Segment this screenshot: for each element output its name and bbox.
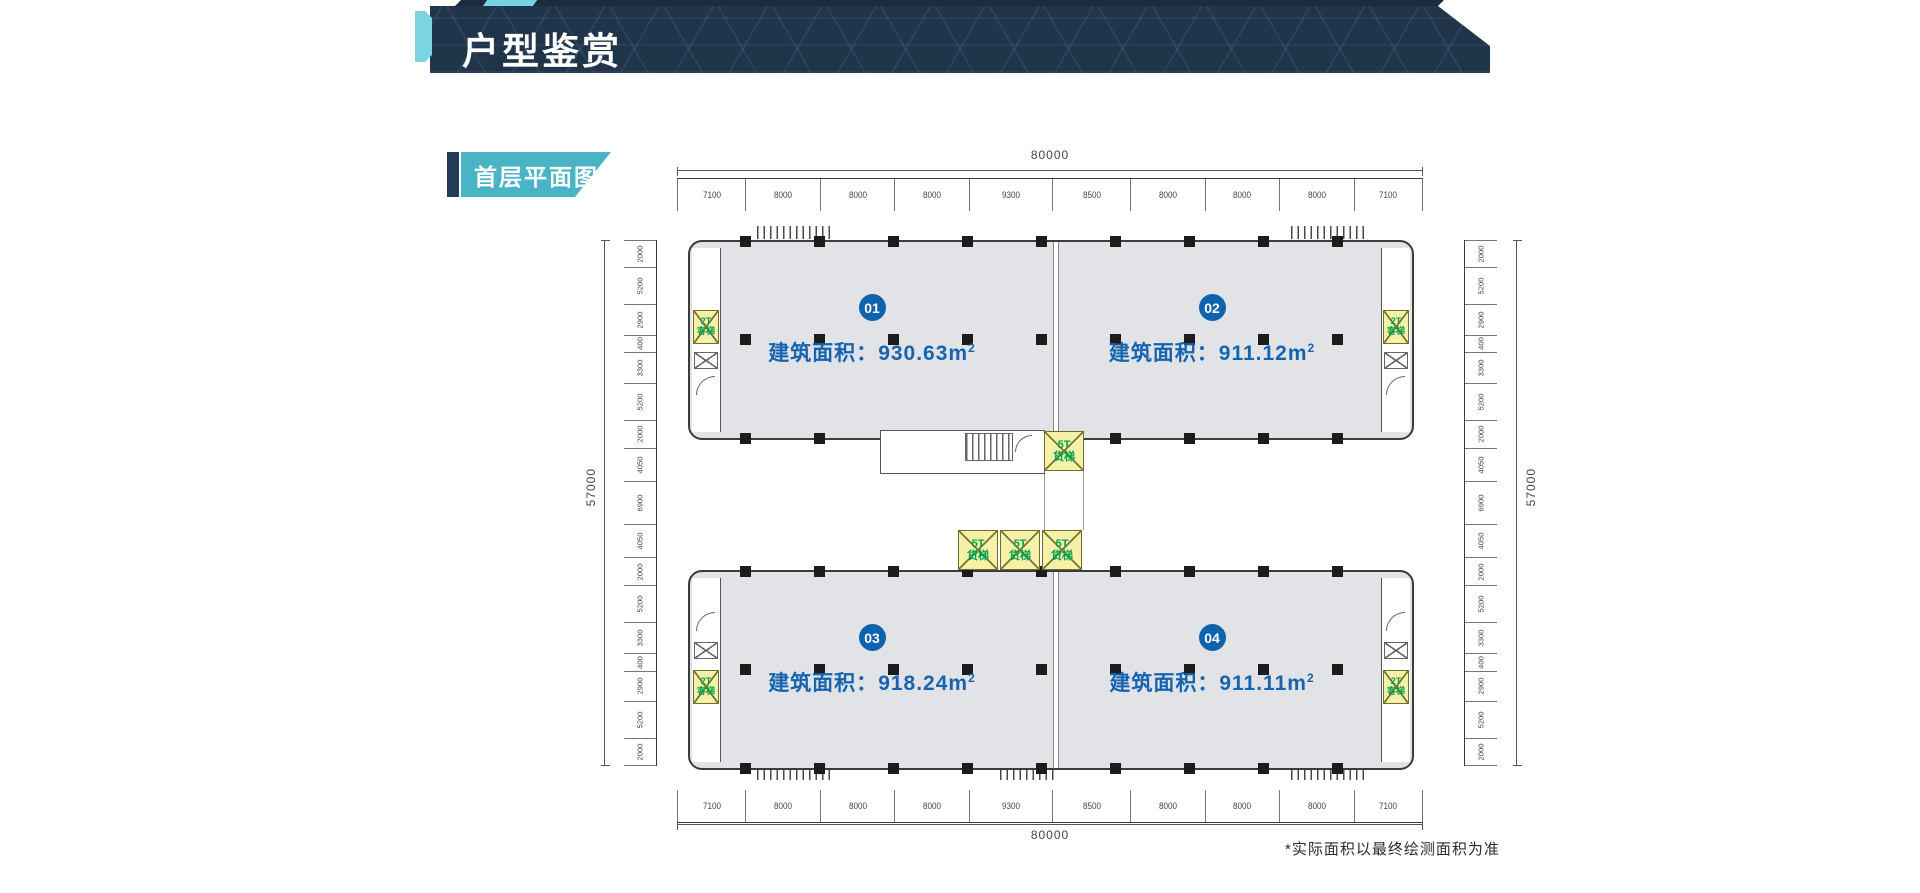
unit-02-badge: 02 [1199, 294, 1226, 321]
dim-segment: 5200 [624, 586, 656, 623]
page: 户型鉴赏 首层平面图 80000 71008000800080009300850… [0, 0, 1920, 893]
dim-segment: 8000 [1206, 790, 1281, 822]
elevator-label: 5T [1014, 538, 1027, 550]
dim-segment: 2000 [624, 558, 656, 585]
dim-line-bottom [677, 824, 1423, 825]
dim-segment: 2000 [1465, 739, 1497, 766]
dim-segment: 8000 [746, 790, 821, 822]
dim-segment: 8500 [1053, 179, 1131, 211]
dim-segment: 8000 [1206, 179, 1281, 211]
dim-segment: 5200 [624, 384, 656, 421]
dim-row-bottom: 7100800080008000930085008000800080007100 [677, 790, 1423, 823]
dim-segment: 400 [1465, 336, 1497, 353]
dim-segment: 8000 [1131, 179, 1206, 211]
dim-segment: 2900 [624, 305, 656, 335]
dim-segment: 8000 [1280, 790, 1355, 822]
dim-segment: 400 [624, 654, 656, 671]
dim-segment: 6900 [1465, 482, 1497, 525]
dim-segment: 2000 [1465, 240, 1497, 268]
dim-overall-height-left: 57000 [584, 468, 598, 506]
dim-segment: 2900 [1465, 672, 1497, 702]
dim-segment: 9300 [970, 179, 1053, 211]
unit-01-badge: 01 [859, 294, 886, 321]
core-corridor [1044, 470, 1084, 530]
dim-segment: 8000 [746, 179, 821, 211]
dim-segment: 400 [624, 336, 656, 353]
dim-segment: 8000 [895, 790, 970, 822]
dim-segment: 2000 [1465, 558, 1497, 585]
elevator-label: 5T [1056, 538, 1069, 550]
dim-segment: 7100 [677, 179, 746, 211]
dim-segment: 2000 [1465, 421, 1497, 448]
dim-col-right: 2000520029004003300520020004050690040502… [1464, 240, 1497, 766]
stairs-hatch [965, 433, 1013, 461]
unit-03-badge: 03 [859, 624, 886, 651]
unit-03-label: 03 建筑面积：918.24m2 [692, 624, 1052, 697]
footnote: *实际面积以最终绘测面积为准 [1285, 838, 1500, 859]
dim-segment: 2000 [624, 421, 656, 448]
dim-segment: 5200 [1465, 268, 1497, 305]
freight-elevator: 5T 货梯 [958, 530, 998, 570]
dim-segment: 3300 [1465, 353, 1497, 384]
dim-segment: 5200 [1465, 384, 1497, 421]
dim-segment: 2000 [624, 240, 656, 268]
dim-segment: 6900 [624, 482, 656, 525]
dim-segment: 5200 [624, 702, 656, 739]
dim-segment: 8000 [821, 179, 896, 211]
dim-segment: 4050 [1465, 525, 1497, 559]
dim-row-top: 7100800080008000930085008000800080007100 [677, 178, 1423, 211]
dim-segment: 3300 [1465, 623, 1497, 654]
dim-line-top [677, 170, 1423, 171]
dim-line-left [604, 240, 605, 766]
dim-segment: 4050 [624, 449, 656, 483]
dim-overall-height-right: 57000 [1524, 468, 1538, 506]
door-swing-icon [1386, 376, 1405, 395]
elevator-label: 货梯 [1053, 451, 1075, 463]
freight-elevator: 5T 货梯 [1042, 530, 1082, 570]
dim-segment: 7100 [677, 790, 746, 822]
dim-segment: 3300 [624, 353, 656, 384]
dim-segment: 5200 [1465, 586, 1497, 623]
dim-segment: 3300 [624, 623, 656, 654]
unit-04-badge: 04 [1199, 624, 1226, 651]
unit-04-area: 建筑面积：911.11m2 [1032, 667, 1392, 697]
page-title: 户型鉴赏 [462, 21, 622, 75]
dim-overall-width-top: 80000 [677, 148, 1423, 162]
dim-segment: 9300 [970, 790, 1053, 822]
elevator-label: 5T [972, 538, 985, 550]
dim-segment: 2900 [1465, 305, 1497, 335]
freight-elevator: 5T 货梯 [1000, 530, 1040, 570]
dim-segment: 2900 [624, 672, 656, 702]
unit-01-area: 建筑面积：930.63m2 [692, 337, 1052, 367]
unit-02-area: 建筑面积：911.12m2 [1032, 337, 1392, 367]
section-label-text: 首层平面图 [461, 158, 599, 192]
door-swing-icon [696, 376, 715, 395]
dim-segment: 8500 [1053, 790, 1131, 822]
banner-cyan-accent-left [415, 11, 432, 62]
unit-03-area: 建筑面积：918.24m2 [692, 667, 1052, 697]
elevator-label: 货梯 [967, 550, 989, 562]
dim-segment: 8000 [895, 179, 970, 211]
section-label-bar [447, 152, 459, 197]
dim-col-left: 2000520029004003300520020004050690040502… [624, 240, 657, 766]
dim-segment: 8000 [1131, 790, 1206, 822]
dim-segment: 5200 [624, 268, 656, 305]
dim-line-right [1516, 240, 1517, 766]
dim-segment: 8000 [1280, 179, 1355, 211]
elevator-label: 货梯 [1009, 550, 1031, 562]
unit-04-label: 04 建筑面积：911.11m2 [1032, 624, 1392, 697]
dim-segment: 7100 [1355, 179, 1423, 211]
unit-01-label: 01 建筑面积：930.63m2 [692, 294, 1052, 367]
dim-segment: 5200 [1465, 702, 1497, 739]
section-label: 首层平面图 [461, 152, 611, 197]
dim-segment: 4050 [624, 525, 656, 559]
dim-segment: 7100 [1355, 790, 1423, 822]
freight-elevator: 5T 货梯 [1044, 431, 1084, 471]
central-stair-core [880, 430, 1045, 474]
unit-02-label: 02 建筑面积：911.12m2 [1032, 294, 1392, 367]
dim-segment: 2000 [624, 739, 656, 766]
dim-segment: 8000 [821, 790, 896, 822]
elevator-label: 5T [1058, 439, 1071, 451]
door-swing-icon [1015, 435, 1032, 452]
elevator-label: 货梯 [1051, 550, 1073, 562]
dim-segment: 400 [1465, 654, 1497, 671]
dim-segment: 4050 [1465, 449, 1497, 483]
